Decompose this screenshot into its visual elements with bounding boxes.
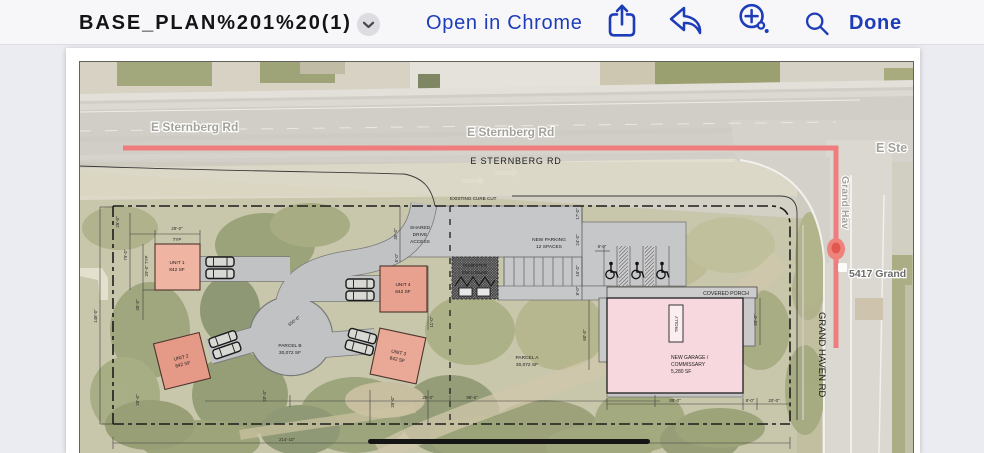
- svg-text:842 SF: 842 SF: [395, 289, 411, 295]
- svg-text:COMMISSARY: COMMISSARY: [671, 362, 706, 368]
- svg-text:25'-0": 25'-0": [115, 216, 120, 228]
- svg-text:ENCLOSURE: ENCLOSURE: [462, 270, 488, 275]
- svg-text:17'-0": 17'-0": [575, 208, 580, 220]
- svg-text:SHARED: SHARED: [410, 225, 431, 231]
- svg-text:20'-0": 20'-0": [768, 398, 780, 403]
- svg-text:GRAND HAVEN RD: GRAND HAVEN RD: [816, 312, 827, 397]
- svg-text:8'-0": 8'-0": [598, 244, 607, 249]
- svg-text:ACCESS: ACCESS: [410, 239, 430, 245]
- svg-text:NEW GARAGE /: NEW GARAGE /: [671, 355, 709, 361]
- svg-text:E STERNBERG RD: E STERNBERG RD: [470, 156, 561, 166]
- svg-text:25'-0": 25'-0": [390, 396, 395, 408]
- svg-text:12 SPACES: 12 SPACES: [536, 244, 562, 250]
- svg-text:25'-0": 25'-0": [135, 394, 140, 406]
- svg-text:148'-0": 148'-0": [93, 309, 98, 323]
- svg-text:PARCEL A: PARCEL A: [516, 355, 540, 361]
- svg-text:8'-0": 8'-0": [575, 286, 580, 295]
- svg-text:NEW PARKING: NEW PARKING: [532, 237, 566, 243]
- svg-text:29'-0" TYP: 29'-0" TYP: [144, 256, 149, 277]
- svg-text:60'-0": 60'-0": [582, 329, 587, 341]
- svg-text:8'-0": 8'-0": [746, 398, 755, 403]
- svg-text:5,280 SF: 5,280 SF: [671, 369, 691, 375]
- svg-text:30,072 SF: 30,072 SF: [516, 362, 538, 368]
- svg-text:TYP: TYP: [173, 237, 182, 242]
- svg-text:30,072 SF: 30,072 SF: [279, 350, 301, 356]
- svg-text:COVERED PORCH: COVERED PORCH: [703, 291, 749, 297]
- svg-text:30'-0": 30'-0": [393, 228, 398, 240]
- svg-text:5417 Grand: 5417 Grand: [849, 268, 906, 280]
- svg-text:5'-0": 5'-0": [394, 253, 399, 262]
- svg-text:98'-6": 98'-6": [466, 395, 478, 400]
- svg-text:EXISTING CURB CUT: EXISTING CURB CUT: [450, 196, 497, 201]
- svg-text:E Sternberg Rd: E Sternberg Rd: [151, 120, 238, 134]
- svg-text:29'-0": 29'-0": [171, 226, 183, 231]
- svg-text:35'-0": 35'-0": [135, 299, 140, 311]
- svg-text:TROLLY: TROLLY: [674, 316, 679, 333]
- svg-text:E Sternberg Rd: E Sternberg Rd: [467, 125, 554, 139]
- svg-text:DRIVE: DRIVE: [413, 232, 428, 238]
- svg-text:11'-0": 11'-0": [429, 316, 434, 327]
- svg-text:79'-0": 79'-0": [123, 249, 128, 261]
- svg-text:20'-0": 20'-0": [262, 390, 267, 402]
- svg-text:Grand Hav: Grand Hav: [839, 176, 851, 229]
- svg-text:88'-0": 88'-0": [669, 398, 681, 403]
- svg-text:842 SF: 842 SF: [169, 267, 185, 273]
- svg-text:PARCEL B: PARCEL B: [278, 343, 301, 349]
- svg-text:24'-0": 24'-0": [575, 234, 580, 246]
- svg-text:E Ste: E Ste: [876, 141, 907, 155]
- svg-text:UNIT 1: UNIT 1: [169, 260, 184, 266]
- svg-text:25'-0": 25'-0": [753, 314, 758, 326]
- svg-text:15'-0": 15'-0": [575, 265, 580, 277]
- svg-text:UNIT 4: UNIT 4: [395, 282, 410, 288]
- svg-text:214'-10": 214'-10": [279, 437, 296, 442]
- svg-text:DUMPSTER: DUMPSTER: [463, 263, 487, 268]
- svg-text:25'-0": 25'-0": [422, 395, 434, 400]
